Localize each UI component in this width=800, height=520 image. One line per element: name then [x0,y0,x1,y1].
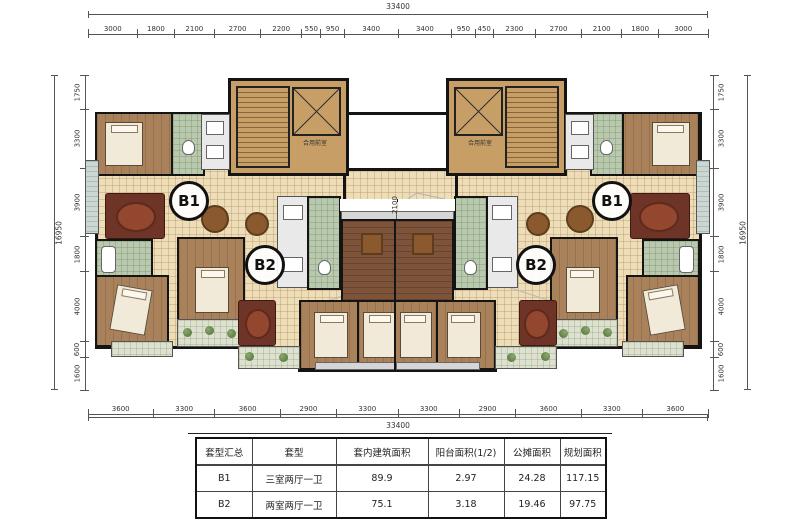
bed-icon [363,312,395,358]
dimension-segment: 550 [302,18,321,34]
dimension-segment: 2900 [280,398,336,414]
elevator-icon [454,87,503,136]
toilet-icon [464,260,477,275]
bedroom-corner-bottom [95,275,169,347]
dimension-text: 3000 [104,26,122,35]
bathroom-unit [307,196,341,290]
unit-bottom-balcony [495,346,557,369]
unit-bottom-balcony [238,346,300,369]
dimension-segment: 2200 [261,18,302,34]
dimension-text: 1800 [631,26,649,35]
dimension-segment: 3300 [398,398,459,414]
bed-icon [566,267,600,313]
corridor-width-dimension: 2100 [391,196,399,214]
bed-icon [400,312,432,358]
dimension-text: 3600 [666,406,684,415]
dimension-segment: 3300 [153,398,214,414]
col-header-planned-area: 规划面积 [560,438,606,465]
dimension-segment: 950 [452,18,475,34]
bed-icon [109,284,152,336]
plant-icon [279,353,288,362]
right-overall-dimension: 16950 [736,75,750,390]
dimension-text: 3300 [74,130,81,148]
unit-label-text: B2 [254,256,276,274]
cell-shared-area: 24.28 [504,466,560,492]
bathroom-middle [95,239,153,279]
dimension-segment: 3600 [516,398,581,414]
plant-icon [205,326,214,335]
sofa-set-icon [105,193,165,239]
dimension-text: 1600 [74,365,81,383]
dimension-text: 1800 [147,26,165,35]
staircase-icon [505,86,559,168]
right-dimension-strip: 175033003900180040006001600 [713,75,729,390]
col-header-unit-summary: 套型汇总 [196,438,252,465]
dimension-segment: 2700 [535,18,581,34]
dimension-line [88,417,708,418]
dimension-segment: 4000 [70,272,85,342]
left-dimension-strip: 175033003900180040006001600 [70,75,86,390]
bed-icon [105,122,143,166]
kitchen-counter [201,114,230,170]
dimension-text: 3600 [112,406,130,415]
cell-unit: B2 [196,492,252,519]
floor-plan: 合用前室 [85,75,710,390]
bedroom-center-a [299,300,361,370]
cell-planned-area: 97.75 [560,492,606,519]
dimension-text: 4000 [718,298,725,316]
dimension-text: 4000 [74,298,81,316]
plant-icon [603,328,612,337]
dimension-segment: 2300 [493,18,535,34]
dimension-text: 3300 [718,130,725,148]
unit-label-b1-right: B1 [592,181,632,221]
dimension-segment: 1800 [70,236,85,271]
dimension-text: 550 [305,26,318,35]
dining-table-icon [526,212,550,236]
table-row: B2 两室两厅一卫 75.1 3.18 19.46 97.75 [196,492,606,519]
core-lobby-label: 合用前室 [454,141,506,148]
kitchen-counter [565,114,594,170]
sofa-set-icon [238,300,276,346]
dining-table-icon [566,205,594,233]
toilet-icon [182,140,195,155]
cell-unit: B1 [196,466,252,492]
dimension-segment: 450 [475,18,493,34]
dimension-text: 600 [718,343,725,356]
bathroom-top [171,112,205,176]
dimension-text: 16950 [739,221,748,245]
cell-shared-area: 19.46 [504,492,560,519]
dimension-text: 3600 [239,406,257,415]
sink-icon [206,145,224,159]
dimension-segment: 3300 [337,398,398,414]
toilet-icon [600,140,613,155]
dimension-text: 1750 [74,83,81,101]
setback-void-mid [340,199,397,211]
rug-icon [116,202,156,232]
dimension-text: 3900 [718,193,725,211]
dimension-segment: 3000 [659,18,709,34]
bathtub-icon [101,246,116,273]
unit-label-b2-right: B2 [516,245,556,285]
bedroom-corner-top [620,112,700,176]
cell-type: 三室两厅一卫 [252,466,336,492]
dimension-segment: 3900 [714,168,729,236]
dimension-segment: 600 [70,341,85,357]
col-header-unit-type: 套型 [252,438,336,465]
unit-label-text: B2 [525,256,547,274]
dimension-segment: 1800 [622,18,659,34]
bedroom-third [177,237,245,323]
dimension-text: 2200 [272,26,290,35]
bedroom-third [550,237,618,323]
garden-balcony [552,319,618,347]
dimension-text: 950 [457,26,470,35]
dimension-text: 3300 [420,406,438,415]
dimension-text: 950 [326,26,339,35]
area-table: 套型汇总 套型 套内建筑面积 阳台面积(1/2) 公摊面积 规划面积 B1 三室… [195,437,607,519]
sink-icon [571,145,589,159]
stove-icon [206,121,224,135]
dimension-text: 2300 [505,26,523,35]
dimension-text: 1800 [718,245,725,263]
bathtub-icon [679,246,694,273]
dimension-segment: 3400 [398,18,452,34]
dimension-text: 600 [74,343,81,356]
bottom-balcony-strip [111,341,173,357]
dimension-segment: 4000 [714,272,729,342]
dining-table-icon [245,212,269,236]
cell-interior-area: 89.9 [336,466,428,492]
window-sill [315,362,399,370]
table-top-rule [188,433,612,434]
side-balcony [85,160,99,234]
window-sill [396,362,480,370]
left-overall-dimension: 16950 [52,75,66,390]
cell-type: 两室两厅一卫 [252,492,336,519]
dimension-text: 2700 [550,26,568,35]
bottom-dimension-strip: 3600330036002900330033002900360033003600 [88,398,708,415]
bedroom-corner-bottom [626,275,700,347]
dimension-segment: 600 [714,341,729,357]
col-header-shared-area: 公摊面积 [504,438,560,465]
dimension-text: 3600 [539,406,557,415]
dimension-segment: 950 [321,18,344,34]
dimension-text: 2900 [479,406,497,415]
plant-icon [559,329,568,338]
dimension-text: 1800 [74,245,81,263]
table-row: B1 三室两厅一卫 89.9 2.97 24.28 117.15 [196,466,606,492]
plant-icon [227,329,236,338]
dimension-text: 1750 [718,83,725,101]
rug-icon [524,309,550,339]
bottom-overall-dimension: 33400 [88,417,708,430]
plan-half-left: 合用前室 [85,75,397,390]
unit-label-text: B1 [601,192,623,210]
dimension-text: 3000 [674,26,692,35]
elevator-icon [292,87,341,136]
plant-icon [507,353,516,362]
table-header-row: 套型汇总 套型 套内建筑面积 阳台面积(1/2) 公摊面积 规划面积 [196,438,606,465]
dimension-segment: 1800 [138,18,175,34]
stove-icon [571,121,589,135]
bathroom-middle [642,239,700,279]
bathroom-unit [454,196,488,290]
plant-icon [183,328,192,337]
dimension-text: 3300 [358,406,376,415]
bed-icon [195,267,229,313]
bedroom-corner-top [95,112,175,176]
dimension-segment: 3300 [70,109,85,168]
stair-elevator-core: 合用前室 [446,78,567,176]
kitchen-counter [486,196,518,288]
sofa-set-icon [519,300,557,346]
dimension-segment: 1750 [70,75,85,109]
dimension-segment: 3000 [88,18,138,34]
stair-elevator-core: 合用前室 [228,78,349,176]
bedroom-center-a [434,300,496,370]
unit-label-text: B1 [178,192,200,210]
bedroom-center-b [394,300,438,370]
col-header-balcony-area: 阳台面积(1/2) [428,438,504,465]
dimension-text: 3900 [74,193,81,211]
cell-interior-area: 75.1 [336,492,428,519]
bed-icon [642,284,685,336]
dimension-segment: 2900 [459,398,515,414]
rug-icon [245,309,271,339]
dimension-text: 3400 [416,26,434,35]
stove-icon [492,205,512,220]
dimension-segment: 3900 [70,168,85,236]
cell-balcony-area: 2.97 [428,466,504,492]
setback-void-mid [398,199,455,211]
dimension-text: 3300 [603,406,621,415]
dimension-segment: 3600 [88,398,153,414]
rug-icon [639,202,679,232]
bed-icon [314,312,348,358]
table-icon [412,233,434,255]
floor-plan-sheet: 33400 3000180021002700220055095034003400… [0,0,800,520]
side-balcony [696,160,710,234]
dimension-segment: 2100 [174,18,214,34]
col-header-interior-area: 套内建筑面积 [336,438,428,465]
plant-icon [541,352,550,361]
table-icon [361,233,383,255]
dimension-segment: 1800 [714,236,729,271]
dimension-text: 2100 [185,26,203,35]
dimension-text: 33400 [386,421,410,430]
dimension-segment: 2700 [214,18,260,34]
dimension-text: 1600 [718,365,725,383]
cell-planned-area: 117.15 [560,466,606,492]
dimension-text: 2700 [229,26,247,35]
sofa-set-icon [630,193,690,239]
dimension-text: 2100 [593,26,611,35]
dimension-text: 3400 [362,26,380,35]
dimension-segment: 3400 [344,18,398,34]
plant-icon [245,352,254,361]
dimension-line [88,14,708,15]
staircase-icon [236,86,290,168]
bathroom-top [590,112,624,176]
core-lobby-label: 合用前室 [289,141,341,148]
garden-balcony [177,319,243,347]
dimension-segment: 2100 [582,18,622,34]
dimension-segment: 1600 [714,358,729,390]
dimension-segment: 3300 [714,109,729,168]
sink-icon [492,257,512,272]
plant-icon [581,326,590,335]
sink-icon [283,257,303,272]
toilet-icon [318,260,331,275]
dimension-text: 2900 [300,406,318,415]
bottom-balcony-strip [622,341,684,357]
dimension-segment: 3600 [643,398,708,414]
unit-label-b1-left: B1 [169,181,209,221]
dimension-segment: 3600 [215,398,280,414]
stove-icon [283,205,303,220]
top-overall-dimension: 33400 [88,2,708,15]
dimension-segment: 1600 [70,358,85,390]
dimension-segment: 3300 [581,398,642,414]
top-dimension-strip: 3000180021002700220055095034003400950450… [88,18,708,35]
dimension-text: 3300 [175,406,193,415]
dimension-text: 450 [478,26,491,35]
cell-balcony-area: 3.18 [428,492,504,519]
plan-half-right: 合用前室 [398,75,710,390]
dimension-segment: 1750 [714,75,729,109]
bed-icon [652,122,690,166]
unit-label-b2-left: B2 [245,245,285,285]
dimension-text: 16950 [55,221,64,245]
bed-icon [447,312,481,358]
